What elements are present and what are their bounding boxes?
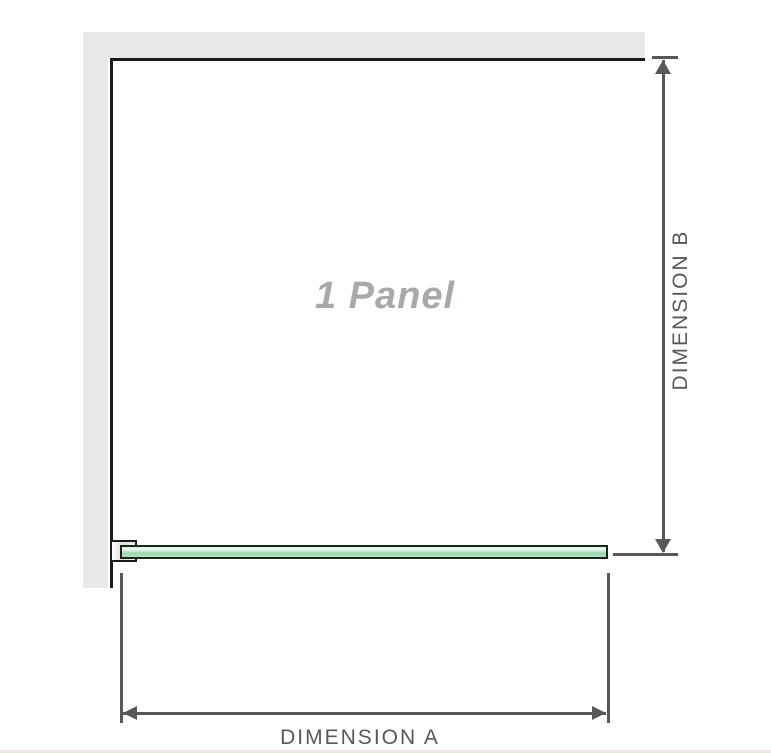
dim-b-tick-bottom (613, 553, 678, 556)
dim-b-tick-top (652, 56, 678, 59)
panel-diagram: 1 Panel DIMENSION B DIMENSION A (0, 0, 771, 755)
dimension-a-label: DIMENSION A (260, 725, 460, 751)
dimension-b-label: DIMENSION B (669, 210, 693, 410)
dim-b-line (662, 60, 665, 552)
arrow-left-icon (123, 706, 137, 720)
panel-left-edge (110, 58, 113, 588)
bottom-divider (0, 750, 771, 753)
arrow-right-icon (592, 706, 606, 720)
panel-top-edge (110, 58, 645, 61)
wall-left-strip (83, 32, 108, 588)
wall-top-strip (83, 32, 645, 58)
panel-count-label: 1 Panel (285, 274, 485, 318)
dim-a-line (123, 712, 606, 715)
glass-panel-top-view (120, 545, 608, 559)
arrow-up-icon (655, 60, 671, 74)
arrow-down-icon (655, 539, 671, 553)
dim-a-extension-left (120, 573, 123, 723)
dim-a-extension-right (607, 573, 610, 723)
